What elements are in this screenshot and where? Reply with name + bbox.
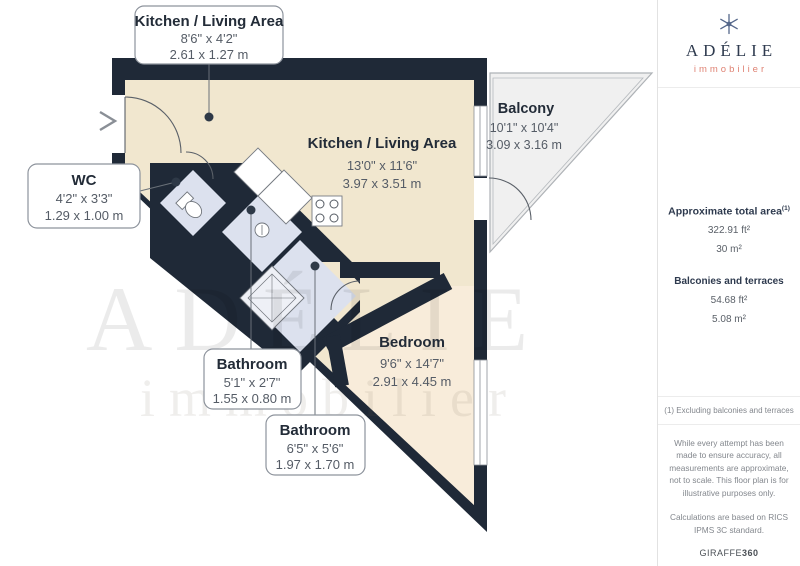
floorplan-canvas: ADÉLIE immobilier Kitchen / Living Area … [0,0,657,566]
bathroom-large-name: Bathroom [280,422,351,439]
stove-icon [312,196,342,226]
giraffe360-brand: GIRAFFE360 [699,548,758,558]
sidebar: ADÉLIE immobilier Approximate total area… [657,0,800,566]
brand-subtitle: immobilier [694,64,767,75]
room-label-balcony: Balcony 10'1" x 10'4" 3.09 x 3.16 m [486,101,562,152]
area-summary: Approximate total area(1) 322.91 ft² 30 … [668,206,790,325]
kitchen-living-metric: 3.97 x 3.51 m [343,176,422,191]
total-area-ft: 322.91 ft² [668,226,790,236]
callout-wc: WC 4'2" x 3'3" 1.29 x 1.00 m [28,164,140,228]
brand-logo: ADÉLIE immobilier [658,0,800,88]
wc-imperial: 4'2" x 3'3" [56,191,113,206]
callout-bathroom-large: Bathroom 6'5" x 5'6" 1.97 x 1.70 m [266,415,365,475]
brand-name: ADÉLIE [686,41,777,61]
floorplan-svg: ADÉLIE immobilier Kitchen / Living Area … [0,0,657,566]
bathroom-large-imperial: 6'5" x 5'6" [287,441,344,456]
callout-bathroom-small: Bathroom 5'1" x 2'7" 1.55 x 0.80 m [204,349,301,409]
room-label-bedroom: Bedroom 9'6" x 14'7" 2.91 x 4.45 m [373,334,452,389]
kitchen-callout-name: Kitchen / Living Area [135,13,284,30]
kitchen-callout-metric: 2.61 x 1.27 m [170,47,249,62]
kitchen-living-imperial: 13'0" x 11'6" [347,158,418,173]
callout-kitchen: Kitchen / Living Area 8'6" x 4'2" 2.61 x… [135,6,284,64]
bathroom-small-imperial: 5'1" x 2'7" [224,375,281,390]
window-living [474,106,487,176]
wc-name: WC [72,172,97,189]
balconies-label: Balconies and terraces [668,277,790,287]
total-area-m: 30 m² [668,245,790,255]
footnote: (1) Excluding balconies and terraces [658,396,800,425]
bedroom-name: Bedroom [379,334,445,351]
bedroom-metric: 2.91 x 4.45 m [373,374,452,389]
calculation-note: Calculations are based on RICS IPMS 3C s… [665,511,793,536]
watermark: ADÉLIE immobilier [86,268,550,428]
balconies-m: 5.08 m² [668,315,790,325]
balcony-door-opening [474,178,487,220]
entry-door-opening [112,95,125,153]
floorplan-page: ADÉLIE immobilier Kitchen / Living Area … [0,0,800,566]
bathroom-small-metric: 1.55 x 0.80 m [213,391,292,406]
sidebar-footer: (1) Excluding balconies and terraces Whi… [658,396,800,566]
bedroom-imperial: 9'6" x 14'7" [380,356,444,371]
balcony-name: Balcony [498,101,554,117]
bathroom-small-name: Bathroom [217,356,288,373]
snowflake-icon [718,13,740,35]
balcony-imperial: 10'1" x 10'4" [490,121,559,135]
balcony-metric: 3.09 x 3.16 m [486,138,562,152]
kitchen-callout-imperial: 8'6" x 4'2" [181,31,238,46]
watermark-line1: ADÉLIE [86,268,550,370]
wc-metric: 1.29 x 1.00 m [45,208,124,223]
bathroom-large-metric: 1.97 x 1.70 m [276,457,355,472]
balcony-area [490,73,652,252]
total-area-label: Approximate total area(1) [668,206,790,217]
balconies-ft: 54.68 ft² [668,296,790,306]
total-area-footnote-marker: (1) [782,205,790,212]
disclaimer-text: While every attempt has been made to ens… [665,437,793,499]
kitchen-living-name: Kitchen / Living Area [308,135,457,152]
sink-icon [255,223,269,237]
